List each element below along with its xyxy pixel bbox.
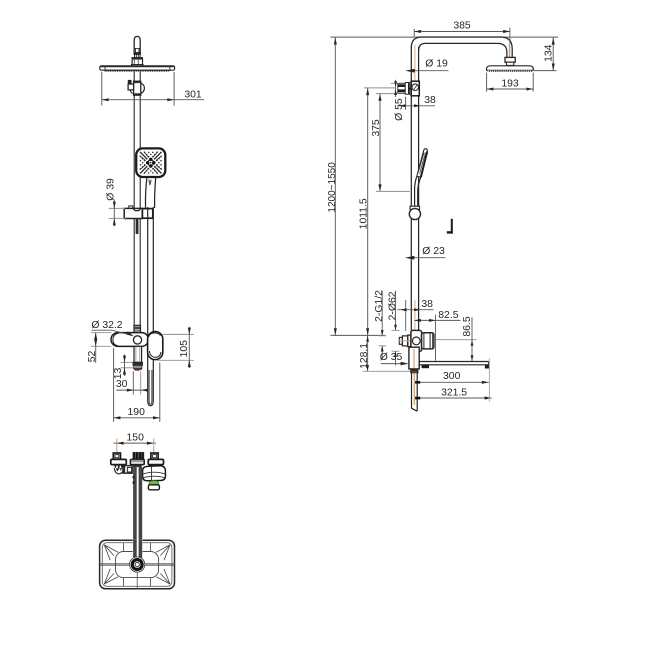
svg-text:1200~1550: 1200~1550	[327, 162, 338, 213]
svg-text:Ø 23: Ø 23	[422, 246, 445, 257]
svg-text:13: 13	[113, 368, 124, 380]
svg-text:2-G1/2: 2-G1/2	[374, 290, 385, 322]
svg-text:150: 150	[127, 433, 145, 444]
svg-text:52: 52	[87, 351, 98, 363]
svg-text:1011.5: 1011.5	[359, 198, 370, 229]
svg-text:38: 38	[424, 95, 436, 106]
svg-text:2-Ø62: 2-Ø62	[388, 291, 399, 320]
svg-text:190: 190	[128, 407, 146, 418]
svg-text:30: 30	[116, 379, 128, 390]
svg-text:134: 134	[544, 44, 555, 62]
svg-text:38: 38	[421, 299, 433, 310]
svg-text:375: 375	[371, 119, 382, 137]
svg-text:Ø 35: Ø 35	[380, 352, 403, 363]
svg-text:Ø 19: Ø 19	[425, 59, 448, 70]
svg-text:128.1: 128.1	[359, 343, 370, 369]
svg-text:385: 385	[453, 20, 471, 31]
svg-text:300: 300	[443, 371, 461, 382]
svg-text:Ø 55: Ø 55	[394, 98, 405, 121]
svg-text:321.5: 321.5	[441, 388, 467, 399]
svg-text:105: 105	[179, 340, 190, 358]
svg-text:301: 301	[184, 89, 202, 100]
svg-text:Ø 39: Ø 39	[105, 178, 116, 201]
svg-text:193: 193	[501, 79, 519, 90]
svg-text:82.5: 82.5	[438, 310, 458, 321]
svg-text:86.5: 86.5	[462, 316, 473, 336]
svg-text:Ø 32.2: Ø 32.2	[91, 320, 122, 331]
